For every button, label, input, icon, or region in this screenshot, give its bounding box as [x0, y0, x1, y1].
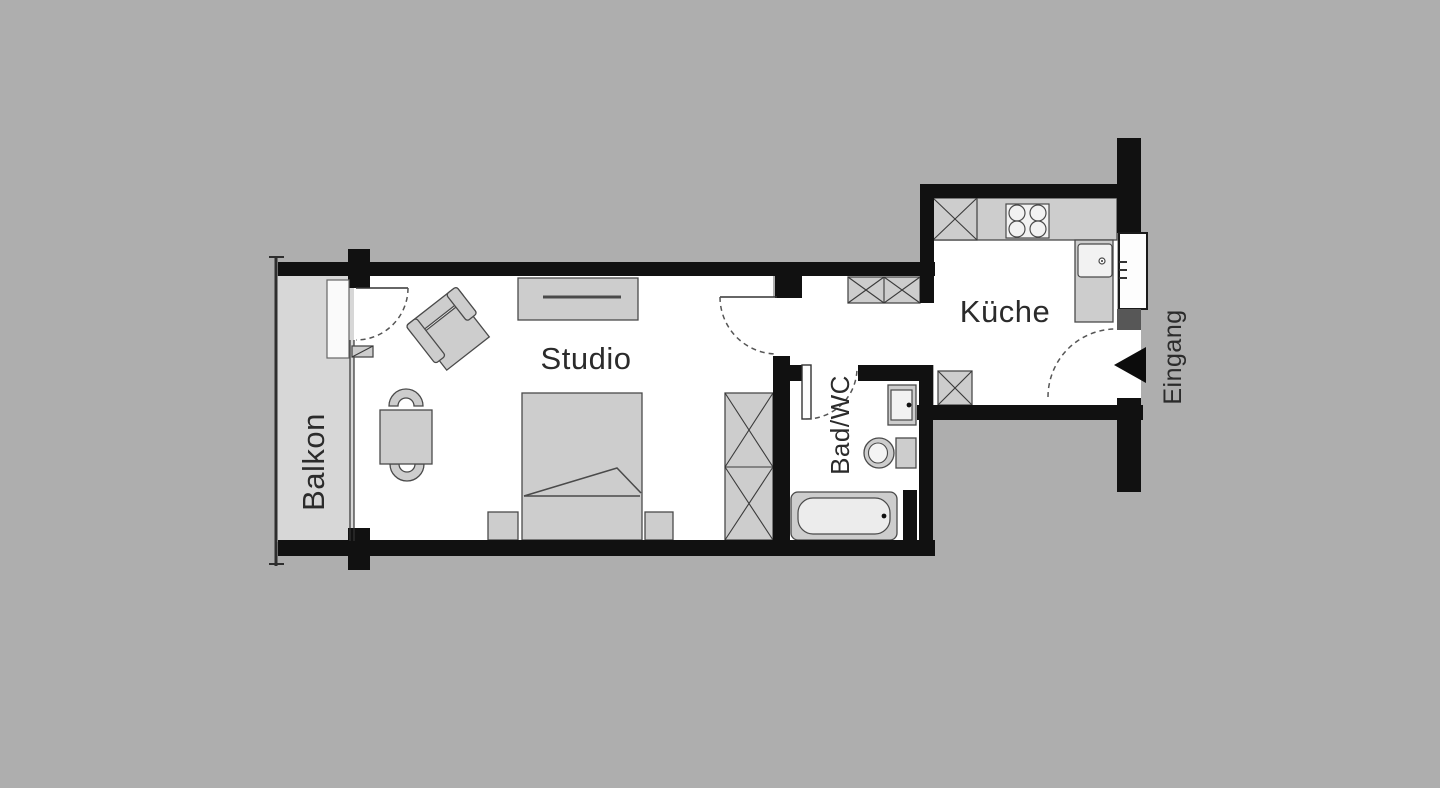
wall-right-column-top [1117, 138, 1141, 233]
kitchen-opening [919, 303, 934, 365]
stove [1006, 204, 1049, 238]
kitchen-sink [1078, 244, 1112, 277]
wall-kitchen-left [920, 184, 934, 303]
label-studio: Studio [541, 341, 632, 376]
studio-door-opening [773, 297, 790, 356]
floor-plan: Balkon Studio Bad/WC Küche Eingang [0, 0, 1440, 788]
entrance-niche [1117, 309, 1141, 330]
label-kitchen: Küche [960, 294, 1050, 329]
balcony-door-panel [327, 280, 349, 358]
floor-plan-canvas: Balkon Studio Bad/WC Küche Eingang [0, 0, 1440, 788]
wall-kitchen-top [920, 184, 1141, 198]
bathroom-door-leaf [802, 365, 811, 419]
pillar-balcony-top [348, 249, 370, 288]
bath-sink [888, 385, 916, 425]
kitchen-cabinet-xbox [933, 198, 977, 240]
window-sill-block [352, 346, 373, 357]
wall-bath-right [919, 365, 933, 540]
nightstand-right [645, 512, 673, 540]
sideboard [518, 278, 638, 320]
table [380, 410, 432, 464]
wall-top [278, 262, 935, 276]
kitchen-corner-xbox [938, 371, 972, 405]
wall-bath-pier [903, 490, 917, 540]
pillar-balcony-bottom [348, 528, 370, 570]
wall-kitchen-bottom [917, 405, 1143, 420]
wall-bath-top-left [785, 365, 802, 381]
hall-wardrobe [848, 277, 920, 303]
label-entrance: Eingang [1159, 309, 1187, 404]
label-balcony: Balkon [296, 413, 331, 511]
wardrobe [725, 393, 773, 540]
bathtub [791, 492, 897, 540]
wall-bottom [278, 540, 935, 556]
label-bathroom: Bad/WC [825, 375, 855, 475]
toilet [864, 438, 916, 468]
wall-studio-bath [773, 356, 790, 540]
nightstand-left [488, 512, 518, 540]
pillar-studio-door [775, 262, 802, 298]
